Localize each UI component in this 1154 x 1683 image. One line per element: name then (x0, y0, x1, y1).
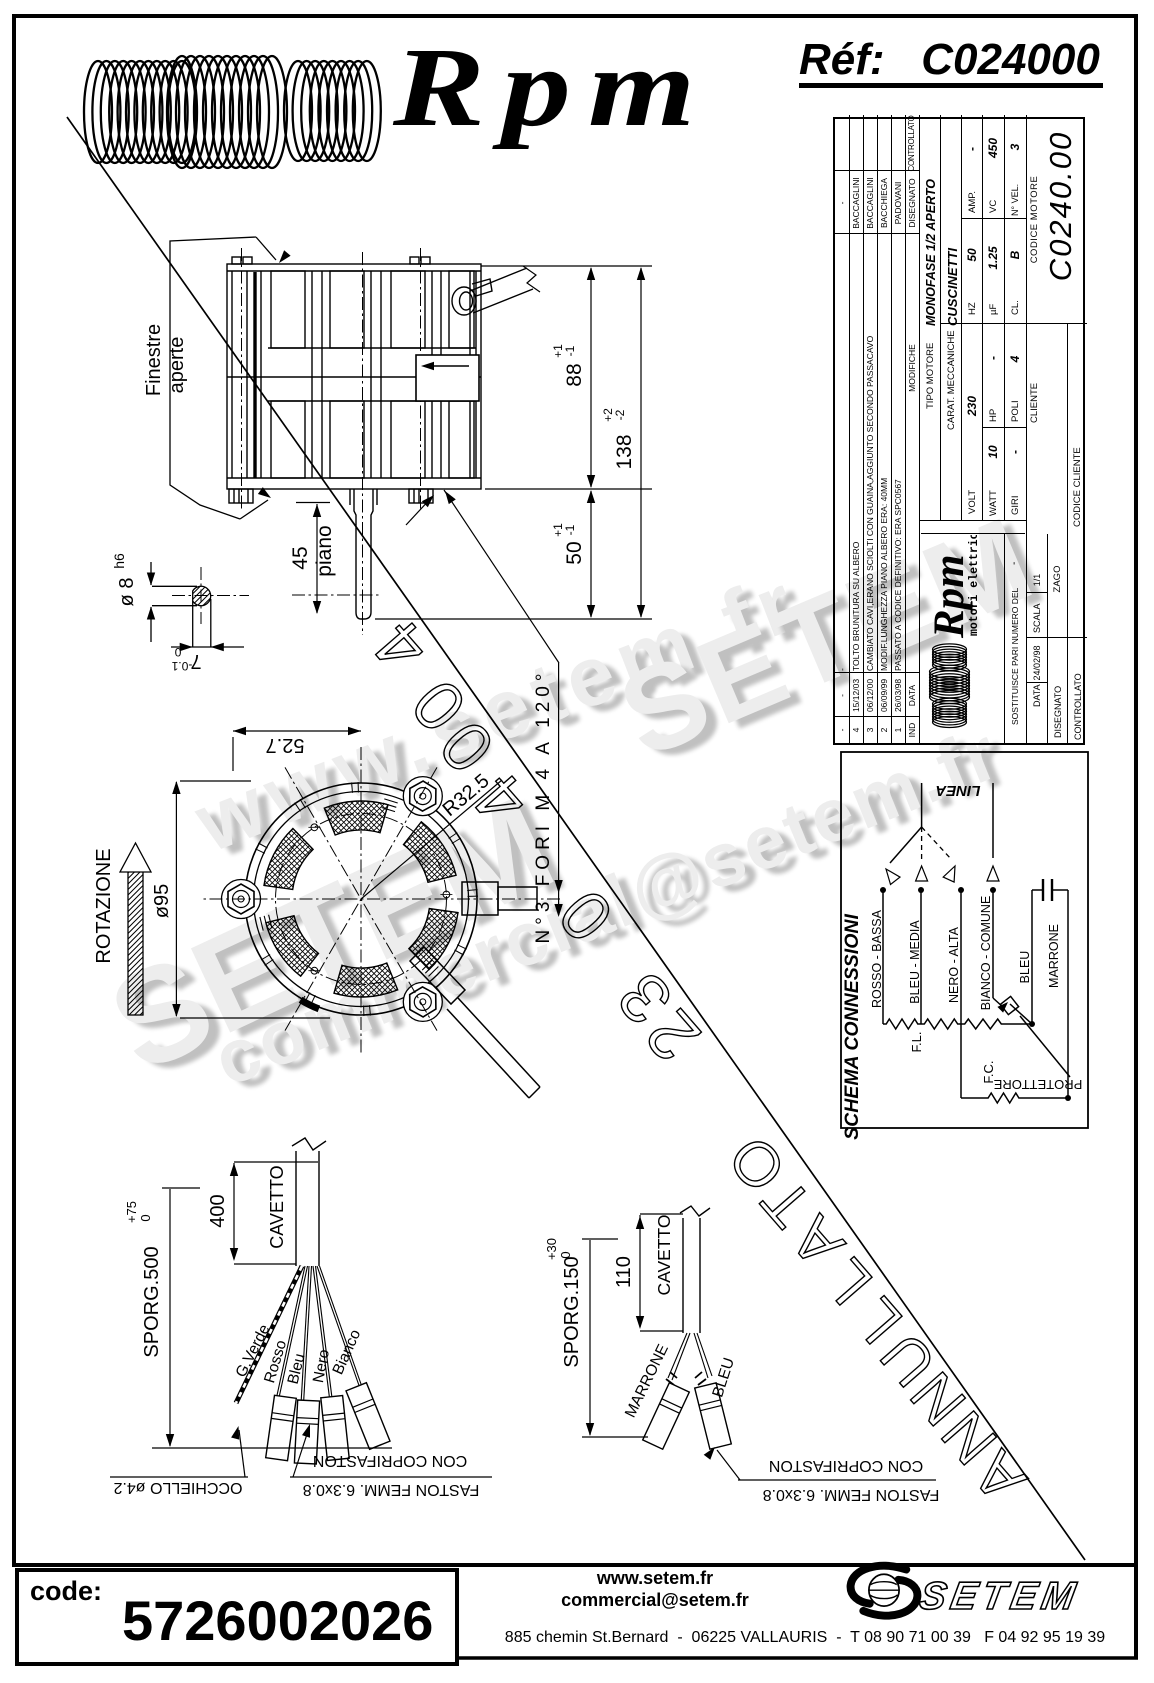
svg-text:SPORG.150: SPORG.150 (561, 1256, 583, 1367)
svg-text:0: 0 (138, 1214, 153, 1221)
svg-text:+30: +30 (544, 1238, 559, 1260)
svg-text:400: 400 (207, 1194, 229, 1227)
svg-text:NERO - ALTA: NERO - ALTA (947, 926, 961, 1003)
svg-text:ø95: ø95 (151, 884, 173, 918)
svg-text:50: 50 (563, 541, 586, 564)
svg-text:FASTON FEMM. 6.3x0.8: FASTON FEMM. 6.3x0.8 (763, 1486, 940, 1503)
svg-text:0: 0 (544, 875, 628, 956)
svg-text:52.7: 52.7 (266, 734, 305, 756)
svg-text:h6: h6 (111, 553, 127, 569)
svg-text:SPORG.500: SPORG.500 (141, 1246, 163, 1357)
svg-text:88: 88 (563, 363, 586, 386)
svg-text:Rpm: Rpm (926, 554, 973, 639)
svg-text:F.L.: F.L. (909, 1032, 924, 1053)
svg-text:CAVETTO: CAVETTO (654, 1214, 674, 1295)
svg-text:CAVETTO: CAVETTO (267, 1165, 287, 1248)
svg-text:CON COPRIFASTON: CON COPRIFASTON (313, 1452, 467, 1469)
svg-text:0: 0 (558, 1251, 573, 1258)
svg-text:motori elettrici: motori elettrici (968, 535, 981, 636)
svg-text:ø 8: ø 8 (116, 578, 138, 607)
svg-text:MARRONE: MARRONE (1047, 924, 1061, 988)
svg-text:4: 4 (459, 759, 543, 840)
svg-text:OCCHIELLO ø4.2: OCCHIELLO ø4.2 (113, 1479, 242, 1496)
svg-text:45: 45 (289, 546, 312, 569)
svg-text:SCHEMA CONNESSIONI: SCHEMA CONNESSIONI (841, 914, 863, 1140)
svg-text:BLEU: BLEU (709, 1356, 738, 1400)
svg-text:CON COPRIFASTON: CON COPRIFASTON (769, 1457, 923, 1474)
svg-text:-2: -2 (613, 409, 627, 420)
svg-text:N°3 FORI M 4 A 120°: N°3 FORI M 4 A 120° (533, 669, 554, 944)
svg-text:-1: -1 (563, 524, 577, 535)
svg-text:BLEU: BLEU (1018, 951, 1032, 984)
svg-text:+75: +75 (124, 1201, 139, 1223)
svg-text:ROSSO - BASSA: ROSSO - BASSA (870, 909, 884, 1008)
svg-text:-1: -1 (563, 345, 577, 356)
svg-text:BLEU - MEDIA: BLEU - MEDIA (908, 920, 922, 1004)
svg-text:PROTETTORE: PROTETTORE (993, 1077, 1082, 1092)
svg-text:FASTON FEMM. 6.3x0.8: FASTON FEMM. 6.3x0.8 (303, 1481, 480, 1498)
svg-text:Bianco: Bianco (329, 1327, 364, 1377)
svg-text:LINEA: LINEA (936, 782, 981, 799)
svg-text:aperte: aperte (166, 337, 188, 394)
svg-text:138: 138 (613, 434, 636, 469)
svg-text:0: 0 (174, 645, 181, 659)
svg-text:Finestre: Finestre (143, 324, 165, 396)
svg-text:ROTAZIONE: ROTAZIONE (93, 848, 115, 963)
svg-text:-0.1: -0.1 (171, 659, 192, 673)
svg-text:110: 110 (613, 1256, 635, 1288)
svg-text:piano: piano (313, 525, 336, 576)
svg-text:BIANCO - COMUNE: BIANCO - COMUNE (979, 896, 993, 1011)
